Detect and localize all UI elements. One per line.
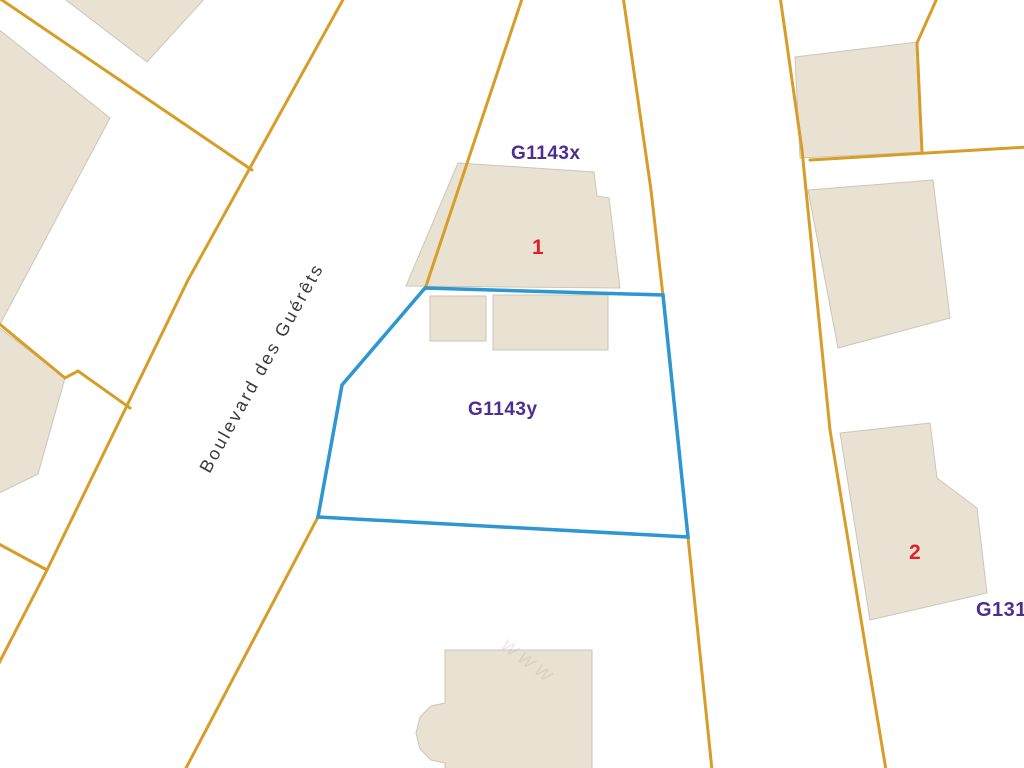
building-small-square — [430, 296, 486, 341]
parcel-line-center-vertical — [623, 0, 712, 768]
building-left-upper — [0, 28, 110, 330]
building-topright-lower — [808, 180, 950, 348]
building-2-footprint — [840, 423, 987, 620]
building-1-footprint — [406, 163, 620, 288]
parcel-label-g1143y: G1143y — [468, 399, 538, 421]
parcel-line-left-connector — [0, 543, 47, 570]
building-number-2-label: 2 — [909, 541, 921, 565]
parcel-line-topright-branch — [917, 0, 938, 152]
building-number-1-label: 1 — [532, 236, 544, 260]
building-small-rect — [493, 295, 608, 350]
parcel-label-g1143x: G1143x — [511, 143, 581, 165]
building-topleft-strip — [62, 0, 206, 62]
map-canvas[interactable]: Boulevard des Guérêts G1143x G1143y G131… — [0, 0, 1024, 768]
parcel-label-g131: G131 — [976, 599, 1024, 622]
building-topright-upper — [795, 42, 922, 158]
building-bottom — [416, 650, 592, 768]
